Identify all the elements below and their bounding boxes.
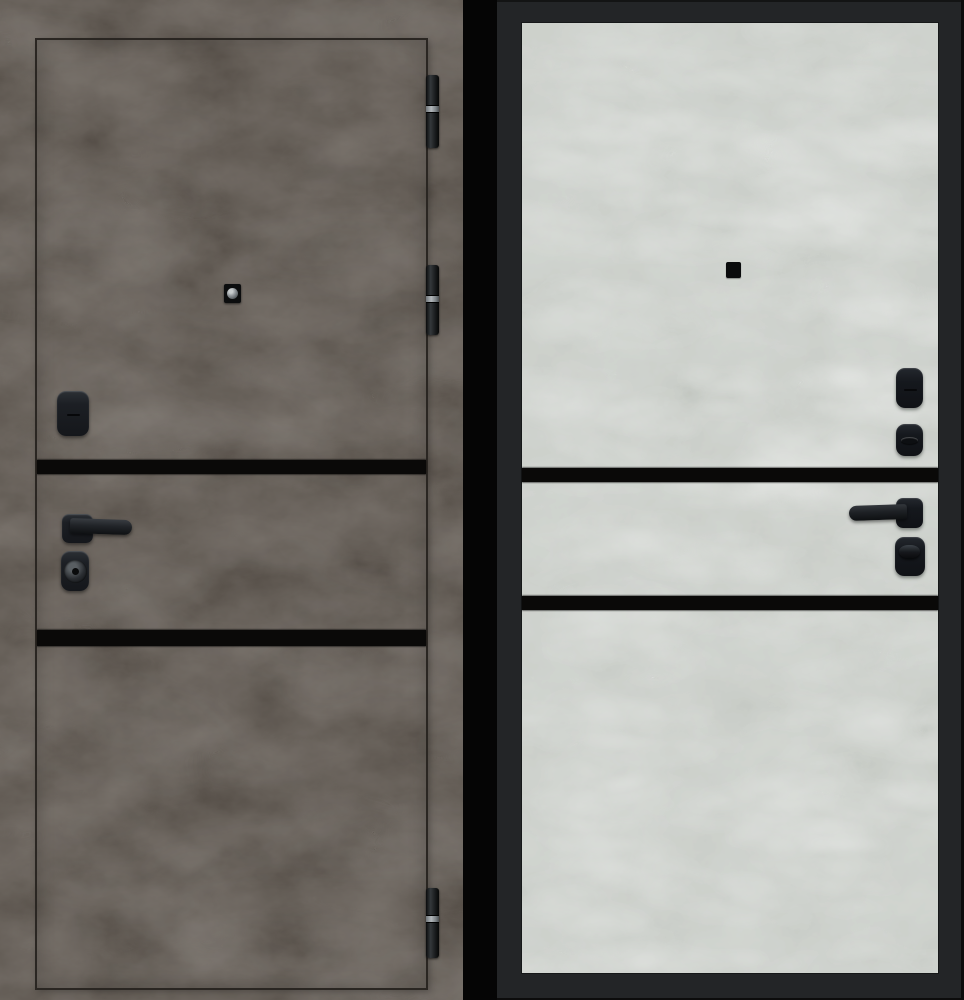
accent-stripe xyxy=(522,596,938,610)
door-exterior-panel xyxy=(0,0,463,1000)
hinge-bottom xyxy=(426,888,439,958)
accent-stripe xyxy=(37,460,426,474)
lock-cylinder xyxy=(64,560,87,583)
lock-thumbturn-knob xyxy=(899,545,920,558)
hinge-ring xyxy=(426,106,439,112)
accent-stripe xyxy=(37,630,426,646)
door-interior-panel xyxy=(463,0,964,1000)
door-product-photo xyxy=(0,0,964,1000)
door-leaf-interior xyxy=(522,23,938,973)
keyhole-slot xyxy=(904,389,917,391)
thumbturn xyxy=(901,437,918,444)
hinge-top xyxy=(426,75,439,148)
peephole xyxy=(726,262,741,278)
hinge-middle xyxy=(426,265,439,335)
lever-handle xyxy=(849,504,907,521)
lock-cylinder-escutcheon xyxy=(61,551,89,591)
hinge-ring xyxy=(426,916,439,922)
stone-texture-light xyxy=(522,23,938,973)
keyhole-cover xyxy=(57,391,89,436)
keyhole-slot xyxy=(67,414,80,416)
keyhole-cover xyxy=(896,368,923,408)
peephole-lens xyxy=(227,288,238,299)
door-frame xyxy=(497,0,964,1000)
hinge-ring xyxy=(426,296,439,302)
accent-stripe xyxy=(522,468,938,482)
door-leaf-exterior xyxy=(35,38,428,990)
peephole xyxy=(224,284,241,303)
lock-thumbturn-escutcheon xyxy=(895,537,925,576)
lever-handle xyxy=(70,518,132,535)
thumbturn-escutcheon xyxy=(896,424,923,456)
